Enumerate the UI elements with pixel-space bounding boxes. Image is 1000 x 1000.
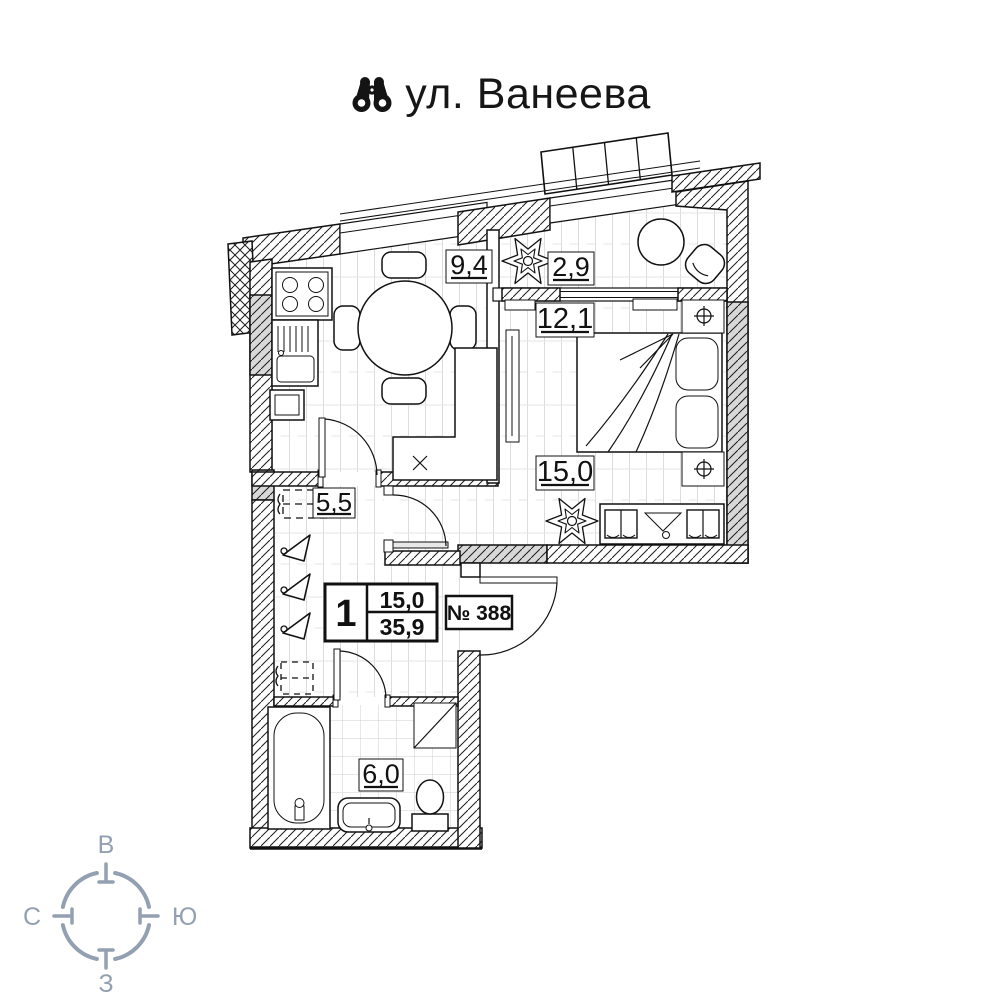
svg-text:6,0: 6,0 — [362, 759, 400, 789]
dining-table — [358, 281, 452, 375]
apartment-info-box: 1 15,0 35,9 — [325, 584, 437, 641]
compass-rose — [54, 864, 158, 968]
apartment-number: № 388 — [447, 602, 512, 625]
bed — [577, 333, 722, 452]
rooms-count: 1 — [335, 593, 356, 635]
area-label-hallway: 5,5 — [313, 487, 355, 518]
nightstand-bottom — [682, 452, 724, 486]
kitchen-appliance — [270, 390, 304, 420]
floor-plan: 9,4 2,9 12,1 15,0 5,5 — [0, 0, 1000, 1000]
compass-east: В — [98, 831, 115, 859]
area-label-kitchen: 9,4 — [446, 250, 492, 283]
nightstand-top — [682, 300, 724, 333]
compass-tick-top — [99, 864, 113, 882]
compass-west: З — [98, 970, 113, 998]
svg-text:5,5: 5,5 — [316, 487, 352, 517]
area-label-bathroom: 6,0 — [359, 759, 403, 791]
svg-text:9,4: 9,4 — [450, 250, 488, 280]
svg-text:12,1: 12,1 — [537, 303, 593, 335]
svg-text:2,9: 2,9 — [552, 252, 590, 282]
compass-tick-left — [54, 909, 72, 923]
area-label-balcony: 2,9 — [548, 252, 594, 285]
total-area: 35,9 — [380, 614, 425, 640]
compass-north: С — [23, 903, 41, 931]
area-label-bedroom-upper: 12,1 — [536, 303, 594, 337]
area-label-living-room: 15,0 — [536, 456, 594, 490]
compass-south: Ю — [172, 903, 197, 931]
compass-tick-bottom — [99, 950, 113, 968]
kitchen-counter-sink — [272, 320, 318, 386]
wardrobe — [600, 504, 724, 544]
sink-icon — [338, 798, 400, 832]
bathroom-cabinet — [414, 703, 456, 748]
bathtub-icon — [268, 707, 330, 829]
compass-tick-right — [140, 909, 158, 923]
svg-text:15,0: 15,0 — [537, 456, 593, 488]
window-sill — [633, 299, 677, 310]
living-area: 15,0 — [380, 587, 425, 613]
balcony-table — [638, 219, 684, 265]
compass-letters: В Ю С З — [23, 831, 197, 998]
stove-icon — [272, 268, 332, 320]
apartment-number-box: № 388 — [446, 596, 512, 629]
tv-shelf — [506, 330, 519, 442]
right-wall-gray — [727, 302, 748, 563]
window-sill — [505, 300, 535, 310]
floor-plan-page: ул. Ванеева — [0, 0, 1000, 1000]
